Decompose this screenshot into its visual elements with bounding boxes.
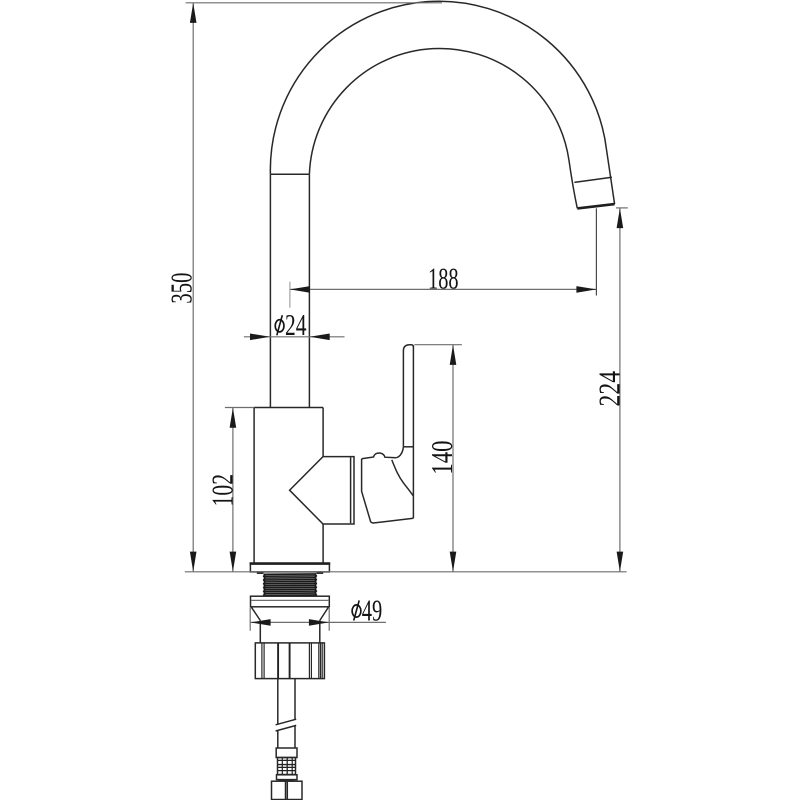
svg-text:188: 188 [428, 260, 459, 295]
svg-text:140: 140 [424, 441, 459, 475]
svg-text:224: 224 [592, 371, 627, 407]
svg-text:102: 102 [204, 474, 239, 507]
svg-text:24: 24 [285, 307, 307, 342]
svg-text:49: 49 [362, 593, 383, 628]
svg-text:350: 350 [164, 273, 199, 304]
